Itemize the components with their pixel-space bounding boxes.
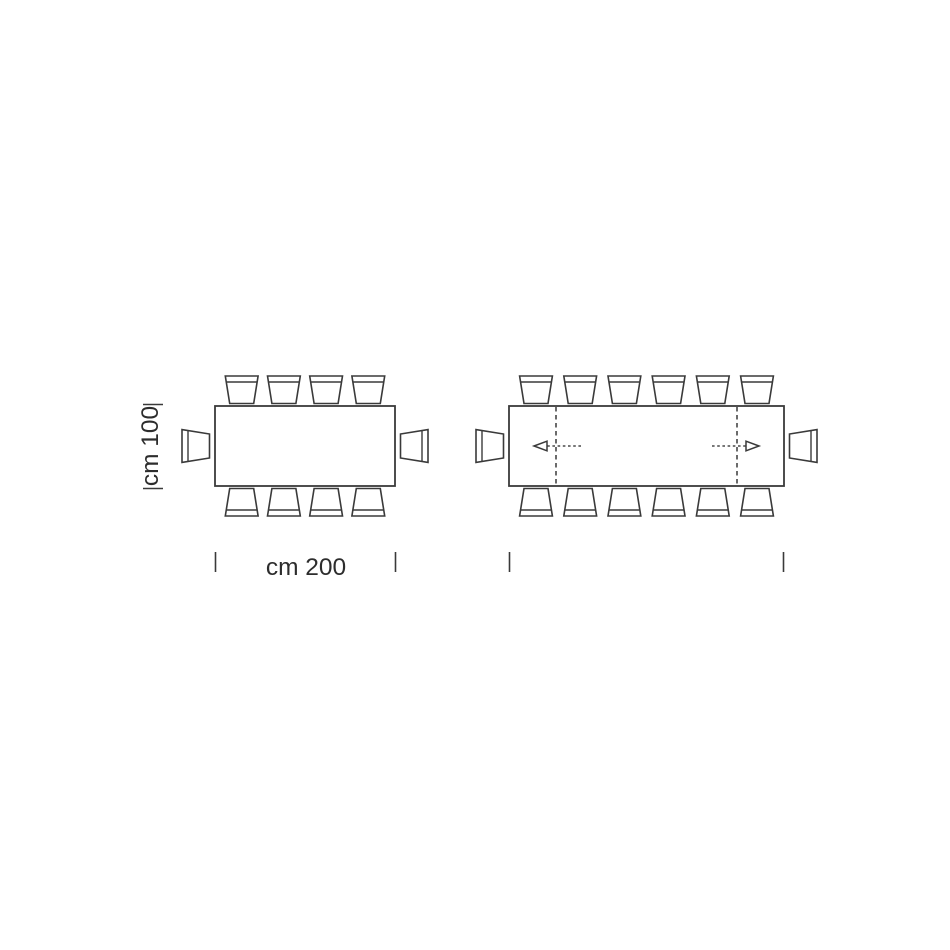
diagram-page: cm 100 cm 200 [0, 0, 950, 950]
chair [741, 489, 774, 517]
chair [268, 489, 301, 517]
table-plan-diagram: cm 100 cm 200 [0, 0, 950, 950]
table-closed-top [215, 406, 395, 486]
chair [352, 489, 385, 517]
chair [520, 376, 553, 404]
table-extended-group [476, 376, 817, 516]
chair [401, 430, 429, 463]
width-dimension-extended [510, 552, 784, 572]
chair [182, 430, 210, 463]
chair [520, 489, 553, 517]
chair [268, 376, 301, 404]
table-extended-top [509, 406, 784, 486]
chair [741, 376, 774, 404]
chair [696, 376, 729, 404]
chair [352, 376, 385, 404]
chair [310, 489, 343, 517]
chair [225, 489, 258, 517]
chair [696, 489, 729, 517]
height-dimension: cm 100 [137, 405, 164, 489]
chair [608, 489, 641, 517]
table-closed-group [182, 376, 428, 516]
chair [608, 376, 641, 404]
chair [652, 489, 685, 517]
chair [564, 376, 597, 404]
chair [476, 430, 504, 463]
chair [790, 430, 818, 463]
chair [652, 376, 685, 404]
width-dimension-closed: cm 200 [216, 552, 396, 581]
chair [310, 376, 343, 404]
chair [564, 489, 597, 517]
chair [225, 376, 258, 404]
width-dimension-label: cm 200 [266, 554, 346, 581]
height-dimension-label: cm 100 [137, 406, 164, 486]
